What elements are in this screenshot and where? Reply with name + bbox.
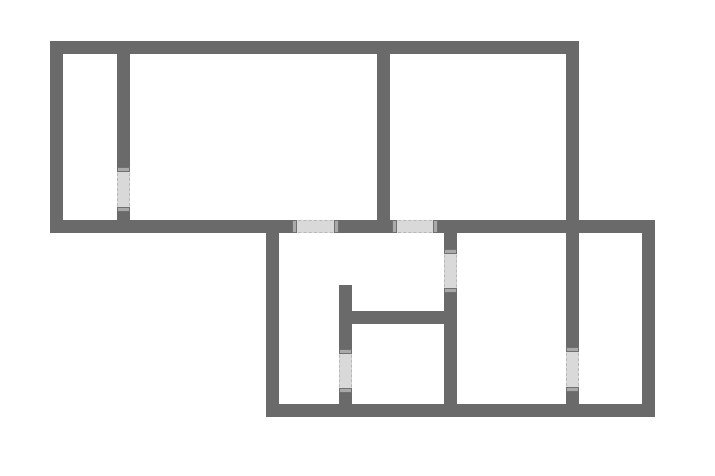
middle-horizontal-wall (50, 220, 655, 233)
interior-horizontal-wall (352, 311, 444, 324)
door-upper-left-room (117, 168, 130, 211)
door-middle-wall-left-jamb-end (334, 220, 339, 233)
door-middle-wall-right (393, 220, 437, 233)
door-lower-center-lower-jamb-end (339, 388, 352, 393)
door-lower-right-room-jamb-start (566, 347, 579, 352)
door-lower-center-upper (444, 250, 457, 292)
door-lower-right-room-jamb-end (566, 387, 579, 392)
door-lower-center-upper-jamb-start (444, 249, 457, 254)
door-lower-center-upper-jamb-end (444, 288, 457, 293)
divider-wall-upper-middle (377, 41, 390, 233)
door-middle-wall-left-jamb-start (292, 220, 297, 233)
door-upper-left-room-jamb-start (117, 167, 130, 172)
door-middle-wall-left (293, 220, 338, 233)
floor-plan-canvas (0, 0, 715, 476)
outer-left-wall-upper (50, 41, 63, 233)
door-upper-left-room-jamb-end (117, 207, 130, 212)
outer-right-wall-lower (642, 220, 655, 417)
door-middle-wall-right-jamb-start (392, 220, 397, 233)
door-lower-right-room (566, 348, 579, 391)
door-lower-center-lower (339, 350, 352, 392)
outer-bottom-wall (266, 404, 655, 417)
outer-left-wall-lower (266, 220, 279, 417)
door-lower-center-lower-jamb-start (339, 349, 352, 354)
door-middle-wall-right-jamb-end (433, 220, 438, 233)
